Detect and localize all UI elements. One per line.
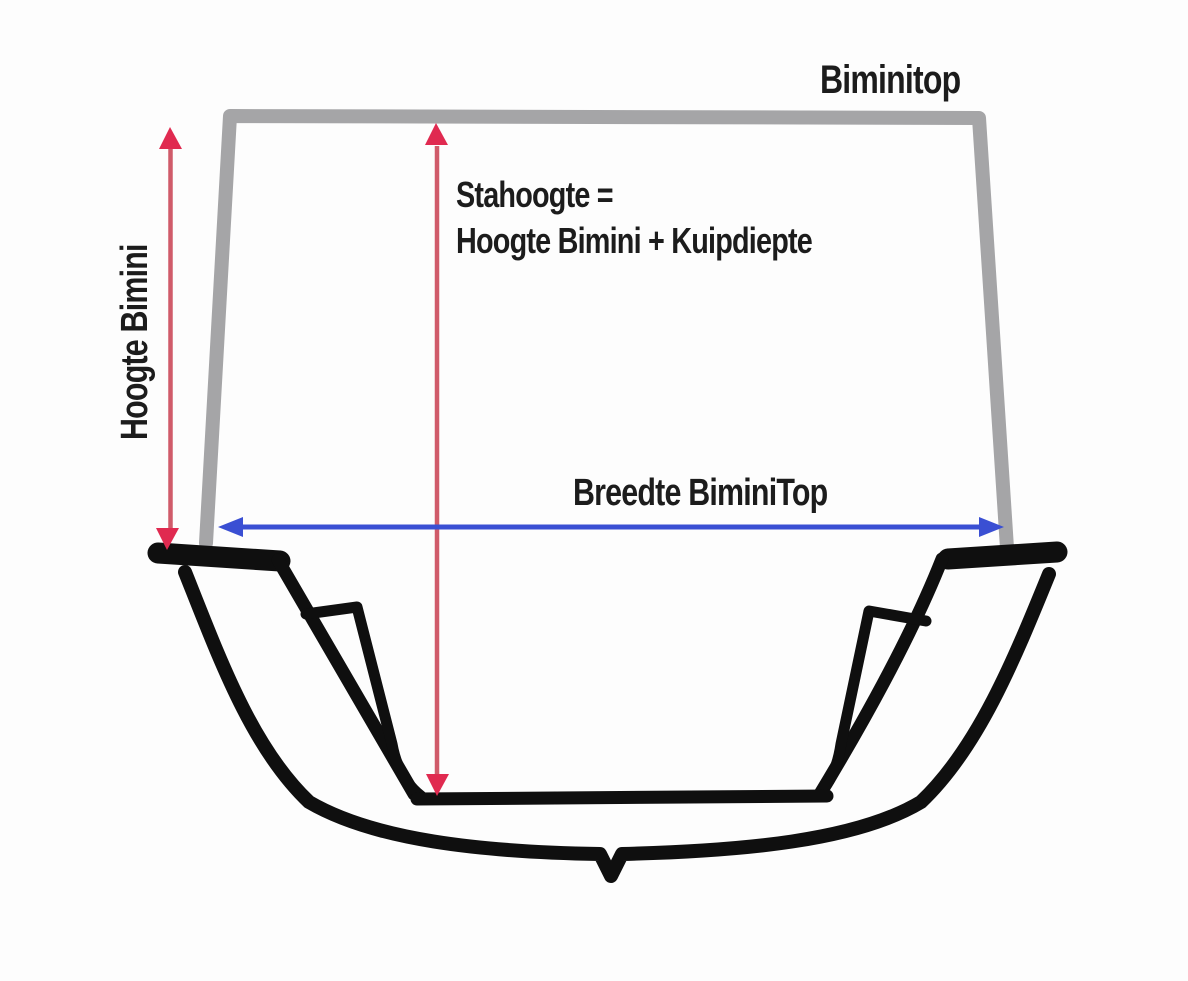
hull-deck-right	[948, 552, 1057, 559]
stahoogte-arrow-head-top	[425, 123, 448, 145]
hoogte-bimini-arrow-head-top	[159, 127, 182, 149]
hoogte-bimini-label: Hoogte Bimini	[114, 244, 157, 440]
stahoogte-formula-line1: Stahoogte =	[456, 172, 812, 218]
breedte-biminitop-label: Breedte BiminiTop	[573, 472, 827, 515]
biminitop-label: Biminitop	[820, 58, 960, 103]
cockpit-floor	[417, 796, 827, 799]
bimini-measurement-diagram: Biminitop Stahoogte = Hoogte Bimini + Ku…	[0, 0, 1188, 981]
stahoogte-formula: Stahoogte = Hoogte Bimini + Kuipdiepte	[456, 172, 812, 264]
breedte-arrow-head-left	[218, 517, 243, 537]
stahoogte-formula-line2: Hoogte Bimini + Kuipdiepte	[456, 218, 812, 264]
hull-deck-left	[158, 553, 280, 561]
